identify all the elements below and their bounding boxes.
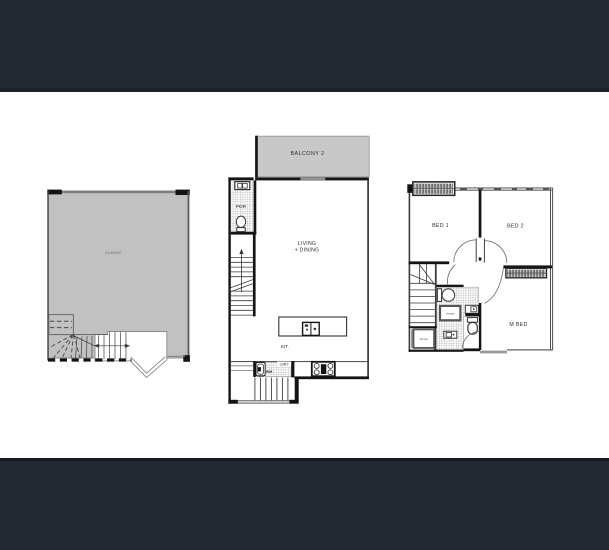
svg-text:BALCONY 2: BALCONY 2	[291, 151, 325, 157]
svg-text:BED 2: BED 2	[507, 224, 524, 230]
svg-text:shower: shower	[419, 337, 428, 341]
svg-text:+ DINING: + DINING	[295, 248, 320, 254]
svg-text:M BED: M BED	[509, 322, 527, 328]
svg-text:GARAGE: GARAGE	[105, 251, 122, 255]
svg-text:LDRY: LDRY	[280, 363, 290, 367]
svg-text:KIT.: KIT.	[281, 344, 289, 349]
svg-text:shower: shower	[446, 311, 455, 315]
svg-text:LIVING: LIVING	[298, 241, 317, 247]
svg-text:BED 1: BED 1	[432, 223, 449, 229]
svg-text:PDR: PDR	[236, 204, 247, 210]
